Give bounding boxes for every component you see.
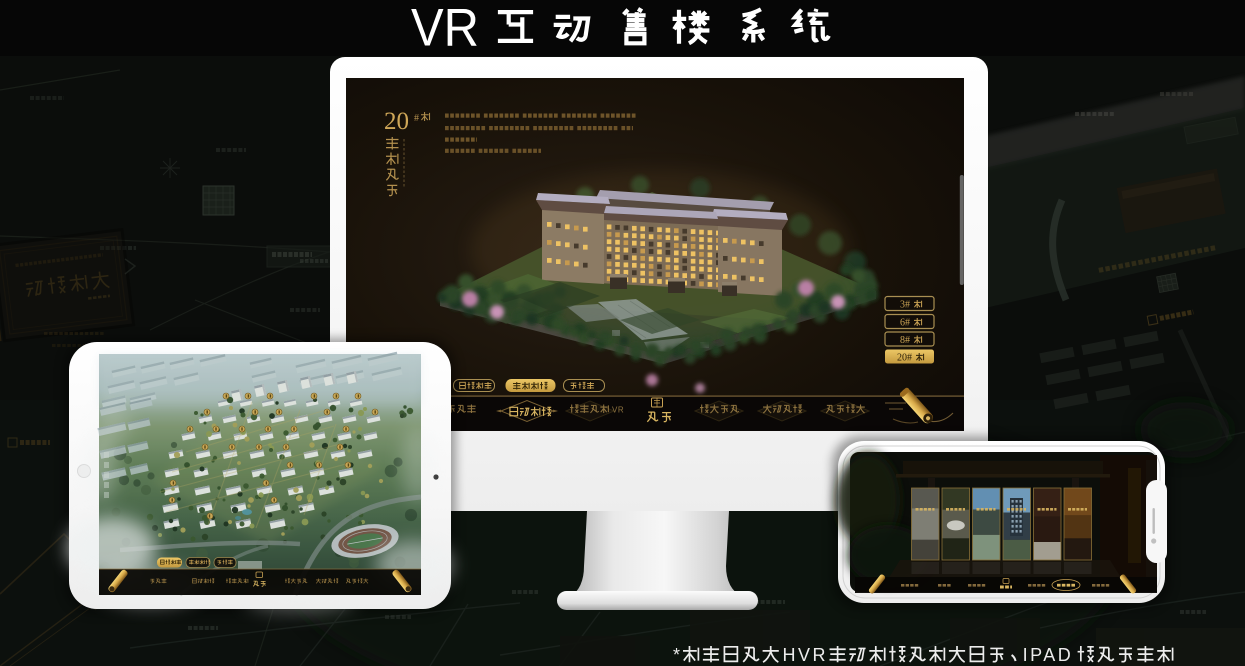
svg-text:20#: 20# [897,353,912,364]
svg-text:6#: 6# [900,318,910,329]
svg-text:VR: VR [612,406,624,415]
svg-text:20: 20 [384,108,409,135]
svg-text:#: # [414,113,419,124]
svg-text:VR: VR [411,0,479,58]
svg-text:*: * [673,645,683,665]
svg-text:3#: 3# [900,300,910,311]
svg-text:8#: 8# [900,335,910,346]
svg-text:HVR: HVR [783,645,829,665]
svg-text:IPAD: IPAD [1023,645,1074,665]
